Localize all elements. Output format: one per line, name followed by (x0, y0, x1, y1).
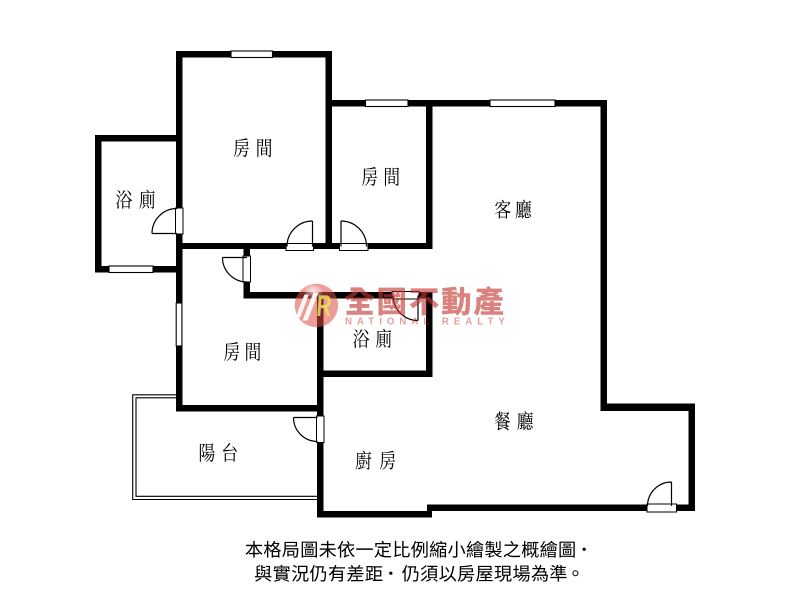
svg-text:NATIONAL REALTY: NATIONAL REALTY (345, 316, 510, 327)
svg-text:R: R (315, 290, 332, 323)
